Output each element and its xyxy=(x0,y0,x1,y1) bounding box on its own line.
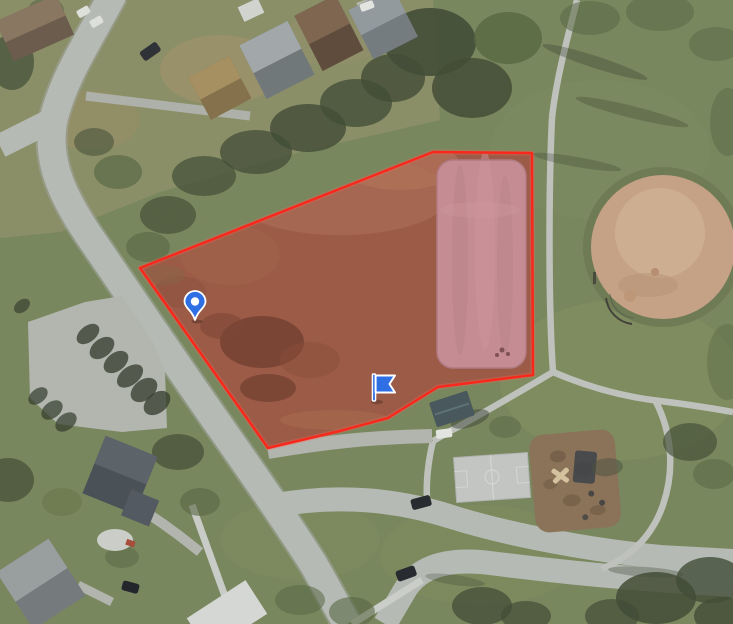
satellite-map[interactable] xyxy=(0,0,733,624)
map-viewport[interactable] xyxy=(0,0,733,624)
pin-hole xyxy=(191,297,199,305)
pin-shadow xyxy=(192,320,203,324)
grain-overlay xyxy=(0,0,733,624)
